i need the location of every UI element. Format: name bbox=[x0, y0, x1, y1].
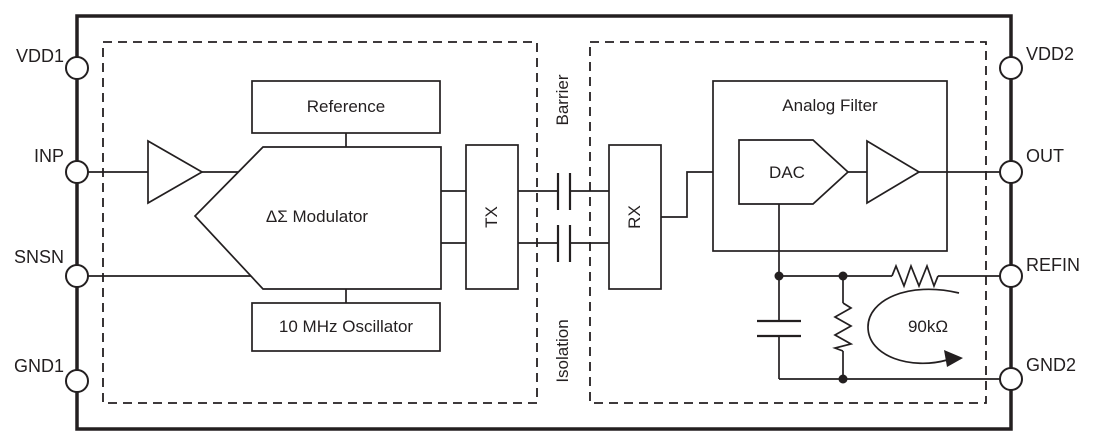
barrier-label: Barrier bbox=[553, 74, 573, 125]
pin-label-out: OUT bbox=[1026, 145, 1064, 167]
pin-vdd1-circle bbox=[66, 57, 88, 79]
pin-label-gnd2: GND2 bbox=[1026, 354, 1076, 376]
isolation-capacitor-bottom bbox=[558, 225, 570, 262]
pin-label-refin: REFIN bbox=[1026, 254, 1080, 276]
diagram-graphics bbox=[0, 0, 1100, 447]
input-amplifier-triangle bbox=[148, 141, 202, 203]
resistance-label: 90kΩ bbox=[908, 317, 948, 337]
modulator-label: ΔΣ Modulator bbox=[266, 207, 368, 227]
arrowhead bbox=[944, 350, 963, 367]
pin-label-inp: INP bbox=[34, 145, 64, 167]
junction-dot bbox=[839, 272, 848, 281]
pin-gnd1-circle bbox=[66, 370, 88, 392]
isolation-label: Isolation bbox=[553, 319, 573, 382]
junction-dot bbox=[839, 375, 848, 384]
filter-capacitor bbox=[757, 321, 801, 336]
junction-dot bbox=[775, 272, 784, 281]
pin-label-gnd1: GND1 bbox=[14, 355, 64, 377]
analog-filter-label: Analog Filter bbox=[782, 96, 877, 116]
isolation-capacitor-top bbox=[558, 173, 570, 210]
pin-label-vdd2: VDD2 bbox=[1026, 43, 1074, 65]
pin-refin-circle bbox=[1000, 265, 1022, 287]
pin-snsn-circle bbox=[66, 265, 88, 287]
pin-vdd2-circle bbox=[1000, 57, 1022, 79]
dac-label: DAC bbox=[769, 163, 805, 183]
reference-label: Reference bbox=[307, 97, 385, 117]
tx-label: TX bbox=[482, 206, 502, 228]
pin-label-vdd1: VDD1 bbox=[16, 45, 64, 67]
pin-gnd2-circle bbox=[1000, 368, 1022, 390]
shunt-resistor bbox=[835, 303, 851, 351]
pin-out-circle bbox=[1000, 161, 1022, 183]
junction-dots bbox=[775, 272, 848, 384]
pin-inp-circle bbox=[66, 161, 88, 183]
pin-label-snsn: SNSN bbox=[14, 246, 64, 268]
oscillator-label: 10 MHz Oscillator bbox=[279, 317, 413, 337]
isolated-amplifier-block-diagram: VDD1 INP SNSN GND1 VDD2 OUT REFIN GND2 R… bbox=[0, 0, 1100, 447]
series-resistor bbox=[892, 266, 938, 286]
rx-label: RX bbox=[625, 205, 645, 229]
